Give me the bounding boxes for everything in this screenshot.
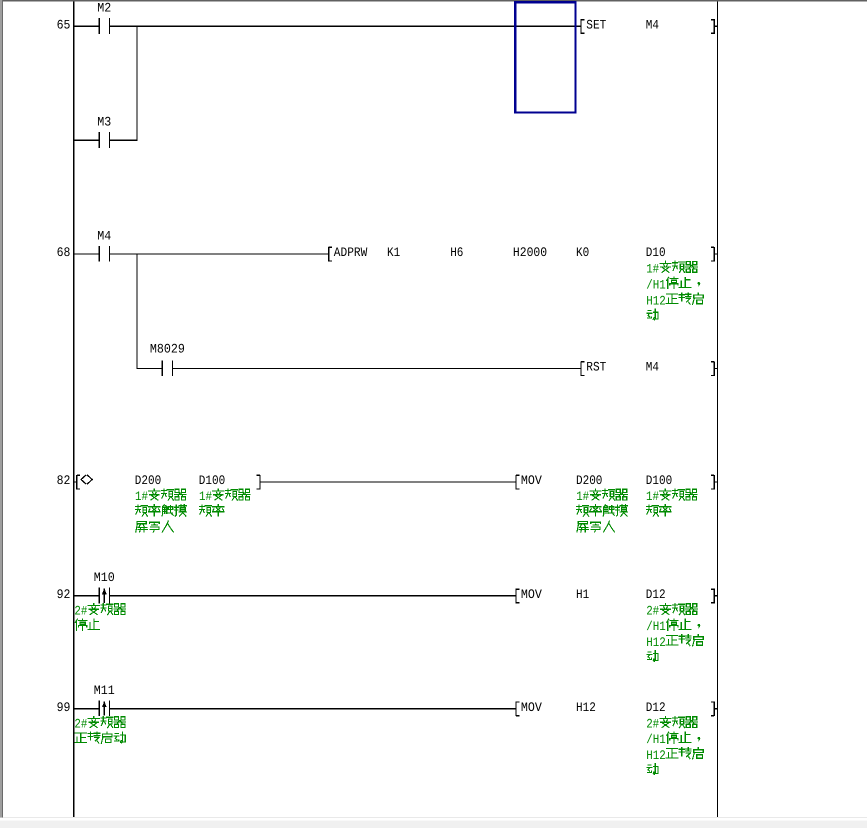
- svg-text:M4: M4: [646, 360, 659, 375]
- svg-text:82: 82: [57, 473, 71, 488]
- svg-text:K1: K1: [387, 245, 400, 260]
- svg-text:D100: D100: [646, 473, 672, 488]
- svg-text:K0: K0: [576, 245, 589, 260]
- svg-text:D200: D200: [135, 473, 161, 488]
- svg-text:H12: H12: [646, 748, 666, 763]
- svg-text:D12: D12: [646, 700, 666, 715]
- svg-text:1#: 1#: [646, 261, 659, 276]
- svg-text:H12: H12: [646, 293, 666, 308]
- svg-text:2#: 2#: [646, 604, 659, 619]
- svg-text:M10: M10: [94, 570, 115, 585]
- svg-text:/H1: /H1: [646, 619, 666, 634]
- svg-text:2#: 2#: [74, 717, 87, 732]
- svg-text:D200: D200: [576, 473, 602, 488]
- svg-text:65: 65: [57, 18, 71, 33]
- svg-text:H1: H1: [576, 587, 589, 602]
- svg-text:D12: D12: [646, 587, 666, 602]
- svg-text:M3: M3: [97, 115, 111, 130]
- svg-text:M8029: M8029: [150, 341, 185, 356]
- svg-text:1#: 1#: [135, 489, 148, 504]
- svg-text:2#: 2#: [646, 717, 659, 732]
- svg-text:H12: H12: [576, 700, 596, 715]
- svg-text:99: 99: [57, 700, 71, 715]
- svg-text:M4: M4: [646, 18, 659, 33]
- svg-text:MOV: MOV: [521, 700, 542, 715]
- svg-text:/H1: /H1: [646, 277, 666, 292]
- svg-text:H2000: H2000: [513, 245, 547, 260]
- svg-text:H12: H12: [646, 635, 666, 650]
- svg-text:M4: M4: [97, 228, 111, 243]
- svg-text:1#: 1#: [576, 489, 589, 504]
- svg-text:68: 68: [57, 245, 71, 260]
- svg-text:H6: H6: [450, 245, 463, 260]
- svg-text:2#: 2#: [74, 604, 87, 619]
- svg-text:ADPRW: ADPRW: [334, 245, 368, 260]
- svg-text:D100: D100: [199, 473, 225, 488]
- svg-text:SET: SET: [586, 18, 606, 33]
- svg-text:M11: M11: [94, 683, 115, 698]
- svg-text:D10: D10: [646, 245, 666, 260]
- svg-text:RST: RST: [586, 360, 606, 375]
- svg-text:MOV: MOV: [521, 473, 542, 488]
- svg-text:1#: 1#: [199, 489, 212, 504]
- svg-text:MOV: MOV: [521, 587, 542, 602]
- svg-text:/H1: /H1: [646, 732, 666, 747]
- svg-text:M2: M2: [97, 1, 111, 16]
- svg-text:1#: 1#: [646, 489, 659, 504]
- svg-text:92: 92: [57, 587, 71, 602]
